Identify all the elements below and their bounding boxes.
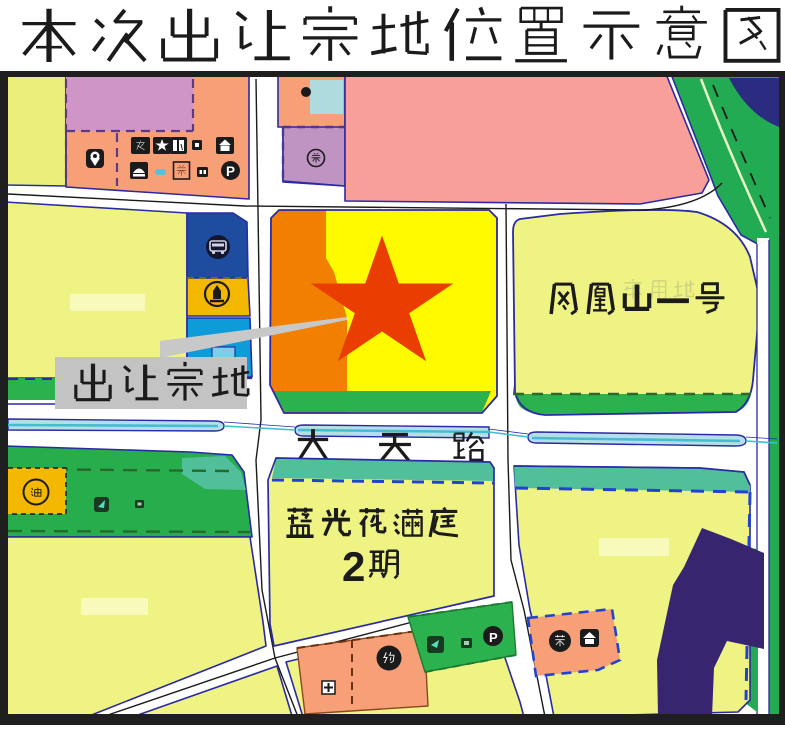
svg-text:P: P [489, 630, 498, 645]
svg-text:2: 2 [342, 543, 365, 590]
svg-text:P: P [226, 164, 235, 179]
